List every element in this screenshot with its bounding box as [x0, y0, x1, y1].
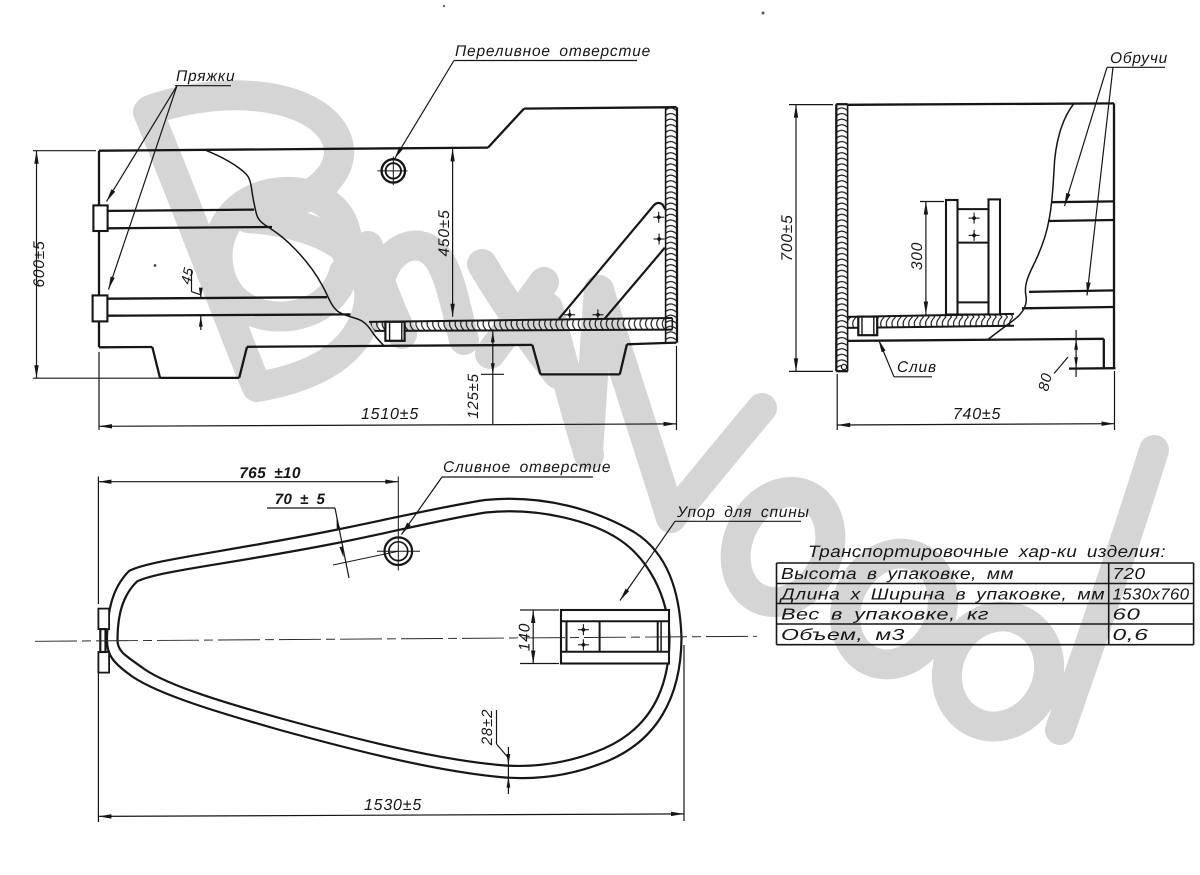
svg-text:140: 140: [517, 623, 534, 651]
svg-text:600±5: 600±5: [31, 241, 48, 288]
svg-text:Обручи: Обручи: [1110, 50, 1168, 67]
svg-text:28±2: 28±2: [479, 709, 496, 746]
svg-text:300: 300: [909, 242, 926, 270]
svg-text:Переливное отверстие: Переливное отверстие: [455, 43, 651, 60]
svg-text:740±5: 740±5: [953, 406, 1001, 423]
svg-text:1530±5: 1530±5: [364, 797, 422, 814]
svg-text:1510±5: 1510±5: [361, 406, 419, 423]
svg-text:Транспортировочные хар-ки изде: Транспортировочные хар-ки изделия:: [808, 543, 1166, 561]
svg-text:125±5: 125±5: [465, 373, 482, 419]
svg-text:Вес в упаковке, кг: Вес в упаковке, кг: [781, 607, 989, 624]
svg-text:Длина х Ширина в упаковке, мм: Длина х Ширина в упаковке, мм: [779, 587, 1105, 604]
svg-text:0,6: 0,6: [1113, 627, 1149, 644]
svg-text:70 ± 5: 70 ± 5: [275, 491, 326, 508]
svg-text:765 ±10: 765 ±10: [239, 465, 301, 482]
svg-text:Высота в упаковке, мм: Высота в упаковке, мм: [781, 566, 1014, 583]
svg-text:Пряжки: Пряжки: [176, 68, 235, 85]
svg-text:Сливное отверстие: Сливное отверстие: [443, 459, 611, 476]
svg-text:450±5: 450±5: [436, 210, 453, 257]
svg-text:60: 60: [1113, 607, 1141, 624]
svg-text:Слив: Слив: [897, 359, 937, 376]
svg-text:1530х760: 1530х760: [1113, 587, 1190, 604]
svg-text:Упор для спины: Упор для спины: [676, 504, 810, 521]
svg-text:700±5: 700±5: [779, 215, 796, 262]
svg-text:720: 720: [1113, 566, 1146, 583]
svg-text:Объем, м3: Объем, м3: [781, 627, 905, 644]
